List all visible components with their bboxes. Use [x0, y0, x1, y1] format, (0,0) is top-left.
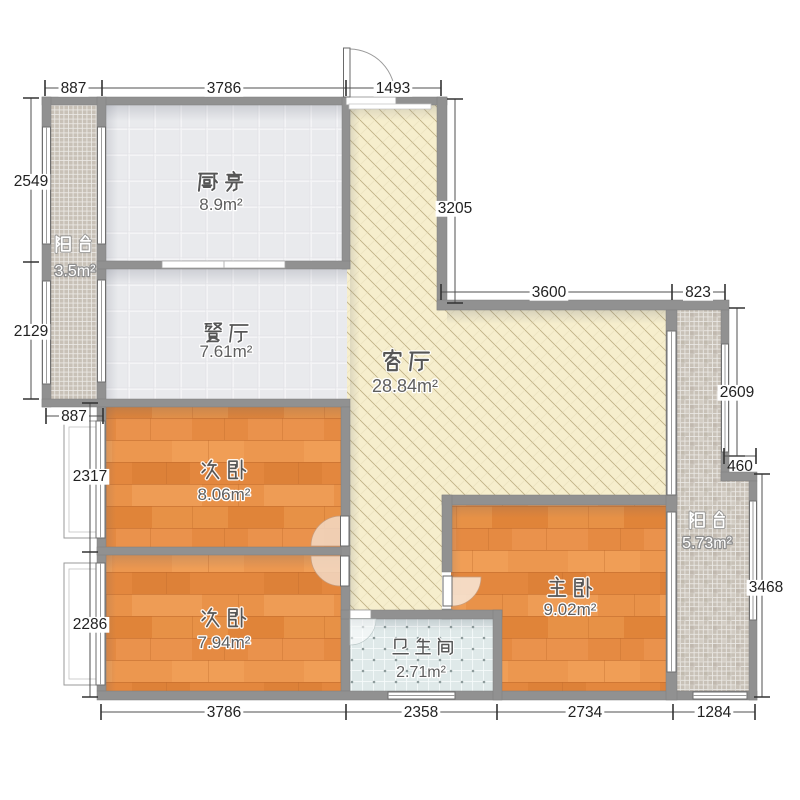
svg-text:2.71m²: 2.71m²: [396, 664, 446, 681]
svg-text:887: 887: [61, 408, 87, 425]
svg-text:2317: 2317: [73, 468, 107, 485]
svg-text:2358: 2358: [404, 704, 438, 721]
svg-text:5.73m²: 5.73m²: [682, 535, 732, 552]
svg-text:7.61m²: 7.61m²: [200, 342, 253, 361]
svg-text:3468: 3468: [749, 579, 783, 596]
svg-text:2609: 2609: [720, 384, 754, 401]
svg-text:2734: 2734: [568, 704, 603, 721]
svg-text:3786: 3786: [207, 80, 241, 97]
svg-text:3.5m²: 3.5m²: [55, 263, 97, 280]
svg-text:1284: 1284: [697, 704, 732, 721]
svg-text:28.84m²: 28.84m²: [372, 376, 438, 396]
svg-text:9.02m²: 9.02m²: [544, 600, 597, 619]
svg-text:2286: 2286: [73, 616, 107, 633]
svg-text:8.06m²: 8.06m²: [198, 485, 251, 504]
svg-text:8.9m²: 8.9m²: [199, 195, 243, 214]
svg-text:3600: 3600: [532, 284, 567, 301]
svg-text:823: 823: [685, 284, 711, 301]
svg-text:887: 887: [61, 80, 87, 97]
svg-text:460: 460: [727, 458, 753, 475]
svg-text:1493: 1493: [376, 80, 410, 97]
svg-text:3205: 3205: [438, 200, 472, 217]
svg-text:2129: 2129: [14, 323, 48, 340]
svg-text:2549: 2549: [14, 173, 48, 190]
svg-text:7.94m²: 7.94m²: [198, 633, 251, 652]
svg-text:3786: 3786: [207, 704, 241, 721]
